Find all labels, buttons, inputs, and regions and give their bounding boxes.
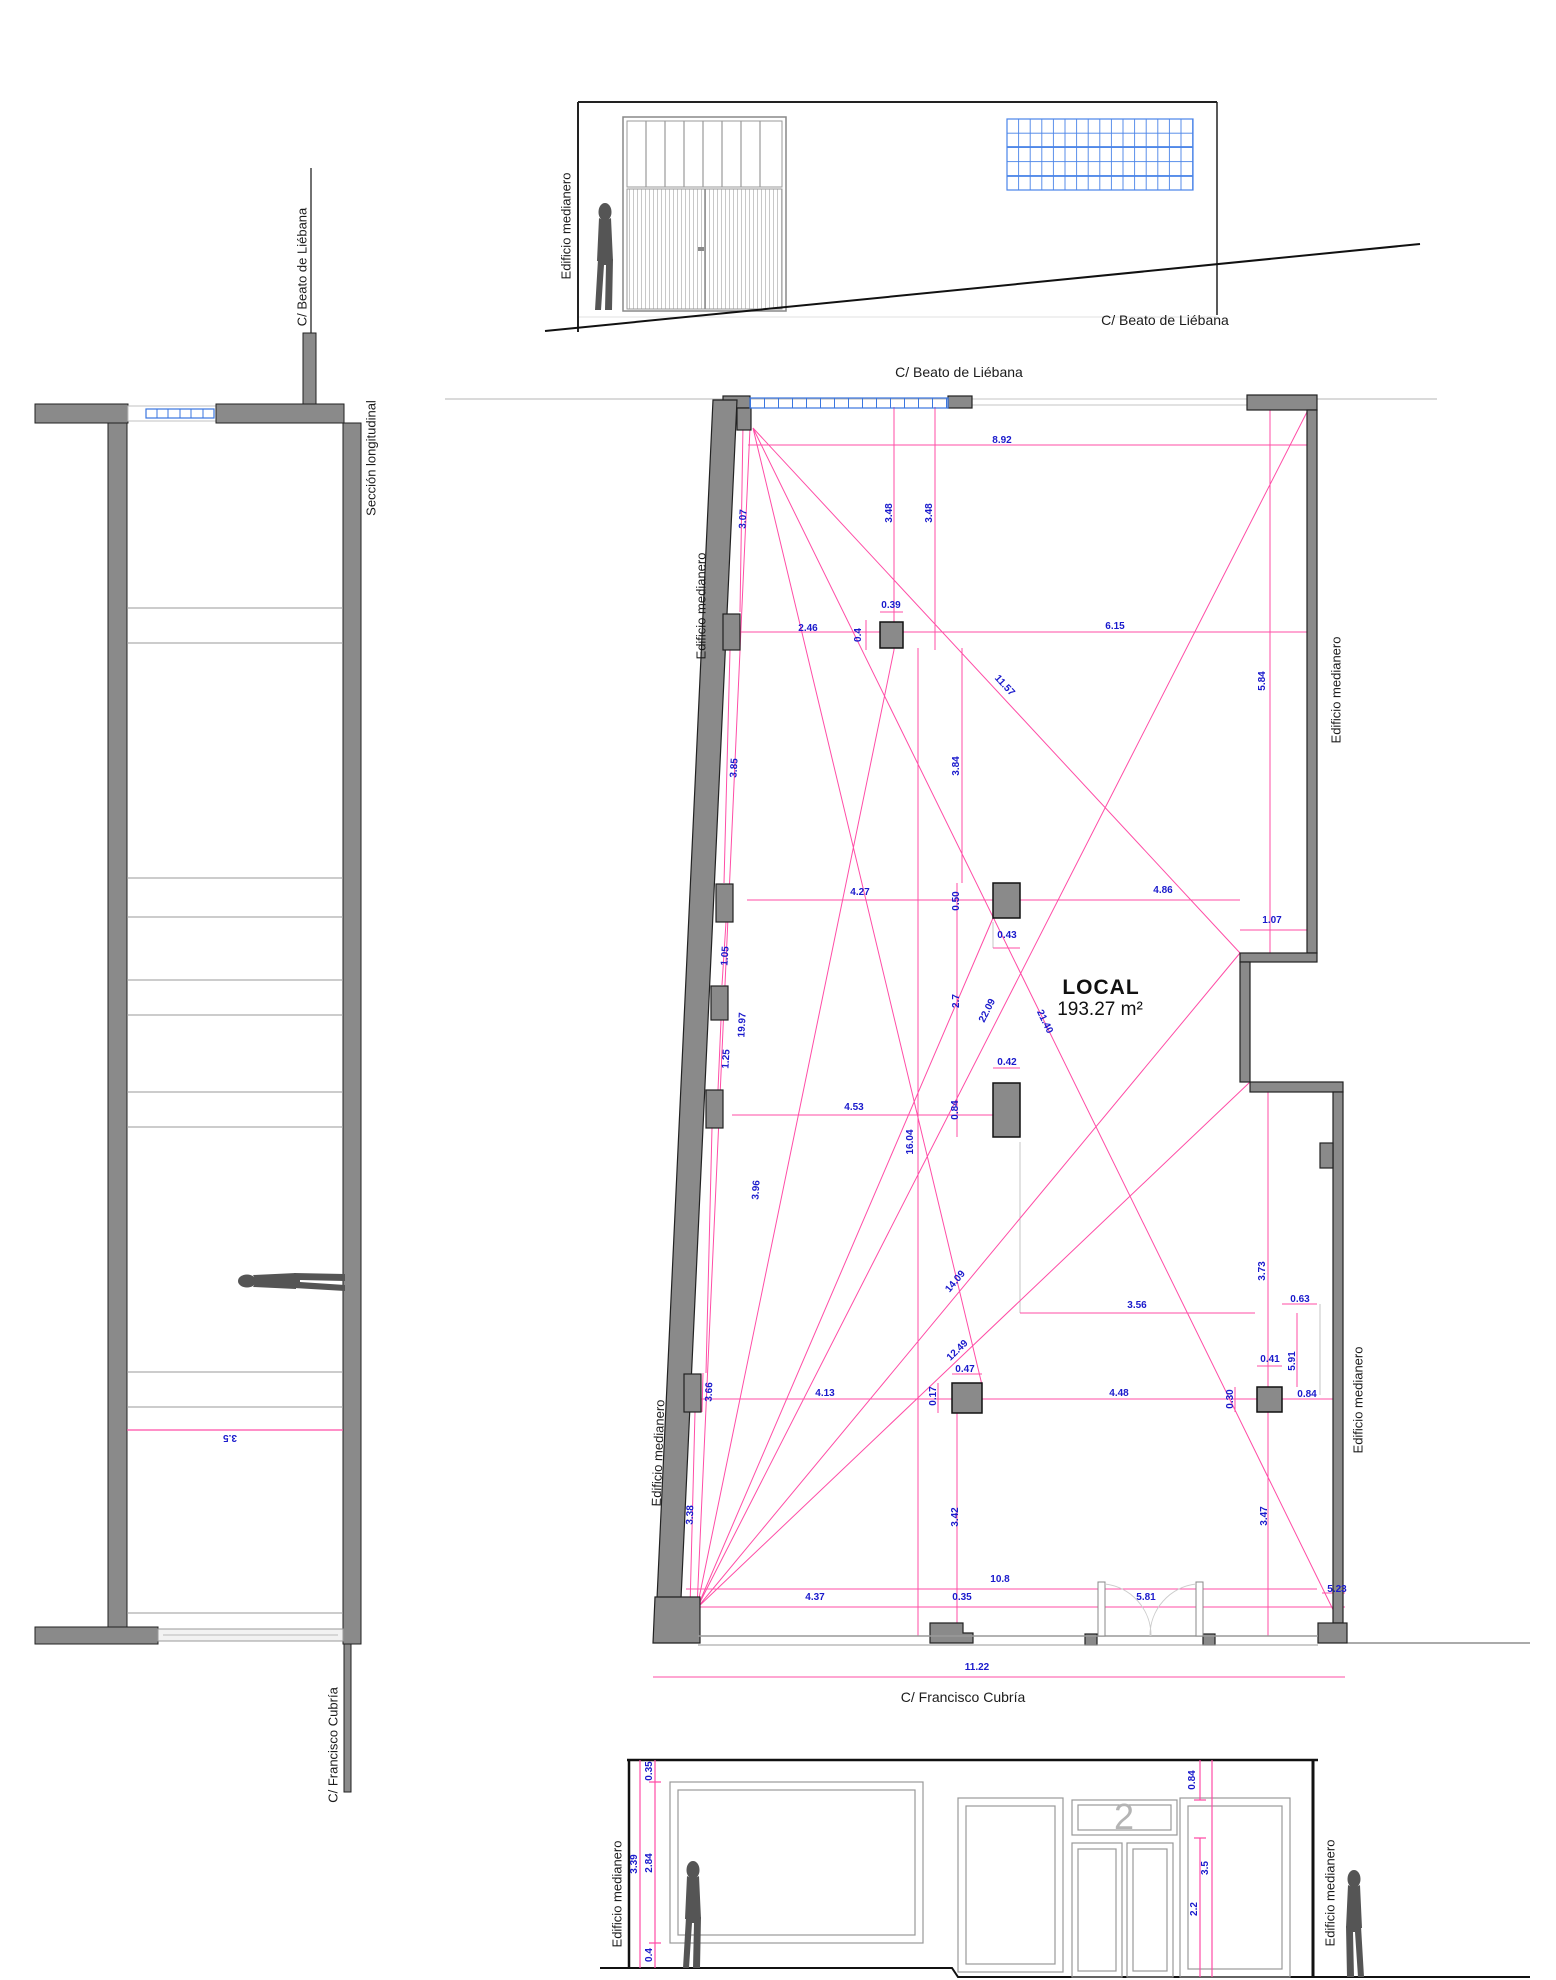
party-wall-label: Edificio medianero — [1330, 637, 1343, 744]
dimension-label: 3.47 — [1260, 1506, 1270, 1525]
dimension-label: 1.07 — [1262, 916, 1281, 926]
section-floor-lines — [127, 608, 343, 1613]
dimension-label: 0.63 — [1290, 1295, 1309, 1305]
section-title: Sección longitudinal — [365, 400, 378, 516]
dimension-label: 0.84 — [1188, 1770, 1198, 1789]
dimension-label: 5.23 — [1327, 1585, 1346, 1595]
street-label-beato-section: C/ Beato de Liébana — [296, 208, 309, 327]
room-area: 193.27 m² — [1057, 999, 1143, 1021]
street-label-francisco-section: C/ Francisco Cubría — [327, 1687, 340, 1803]
section-right-wall — [343, 423, 361, 1644]
plan-bottom-storefront — [698, 1582, 1318, 1645]
section-wall-below — [344, 1644, 351, 1792]
dimension-label: 3.5 — [223, 1432, 237, 1442]
dimension-label: 0.50 — [952, 891, 962, 910]
person-silhouette — [1346, 1870, 1364, 1977]
dimension-label: 0.17 — [929, 1386, 939, 1405]
dimension-label: 0.42 — [997, 1058, 1016, 1068]
dimension-label: 3.84 — [952, 756, 962, 775]
column — [952, 1383, 982, 1413]
column — [993, 883, 1020, 918]
party-wall-label: Edificio medianero — [1324, 1840, 1337, 1947]
dimension-label: 3.38 — [686, 1505, 697, 1525]
dimension-label: 3.48 — [885, 503, 895, 522]
dimension-label: 0.47 — [955, 1365, 974, 1375]
drawing-linework — [0, 0, 1556, 1980]
floor-plan — [445, 395, 1530, 1677]
column — [993, 1083, 1020, 1137]
section-left-wall — [108, 423, 127, 1628]
section-window — [146, 409, 214, 418]
street-label-beato-top-elevation: C/ Beato de Liébana — [1101, 313, 1229, 327]
portal-number: 2 — [1114, 1796, 1134, 1838]
plan-right-wall-lower — [1333, 1092, 1343, 1623]
ground-line — [600, 1968, 1530, 1977]
dimension-label: 0.43 — [997, 931, 1016, 941]
dimension-label: 3.85 — [729, 758, 740, 778]
dimension-label: 3.42 — [951, 1507, 961, 1526]
dimension-label: 4.53 — [844, 1103, 863, 1113]
dimension-label: 19.97 — [737, 1012, 748, 1038]
person-silhouette-lying — [238, 1273, 345, 1291]
person-silhouette — [595, 203, 613, 310]
entrance-door — [1072, 1843, 1122, 1977]
entrance-door — [1127, 1843, 1173, 1977]
dimension-label: 6.15 — [1105, 622, 1124, 632]
longitudinal-section — [35, 168, 361, 1792]
column — [1257, 1387, 1282, 1412]
dimension-label: 0.4 — [645, 1948, 655, 1962]
dimension-label: 3.5 — [1201, 1861, 1211, 1875]
dimension-label: 2.84 — [645, 1853, 655, 1872]
dimension-label: 0.35 — [952, 1593, 971, 1603]
party-wall-label: Edificio medianero — [611, 1841, 624, 1948]
dimension-label: 11.22 — [965, 1663, 989, 1673]
party-wall-label: Edificio medianero — [560, 173, 573, 280]
plan-right-wall-upper — [1307, 410, 1317, 953]
glass-block-panel — [1007, 119, 1193, 190]
plan-storefront-glazing — [750, 398, 948, 408]
party-wall-label: Edificio medianero — [1352, 1347, 1365, 1454]
door-handle-icon — [698, 247, 704, 251]
dimension-label: 5.84 — [1258, 671, 1268, 690]
dimension-label: 3.39 — [630, 1854, 640, 1873]
dimension-label: 5.91 — [1288, 1351, 1298, 1370]
dimension-label: 4.13 — [815, 1389, 834, 1399]
dimension-label: 2.46 — [798, 624, 817, 634]
party-wall-label: Edificio medianero — [650, 1399, 667, 1506]
dimension-label: 3.66 — [705, 1382, 716, 1402]
plan-walls — [653, 395, 1347, 1645]
dimension-label: 3.48 — [925, 503, 935, 522]
dimension-label: 4.27 — [850, 888, 869, 898]
dimension-label: 4.37 — [805, 1593, 824, 1603]
column — [880, 622, 903, 648]
dimension-label: 1.05 — [720, 946, 731, 966]
room-name: LOCAL — [1062, 976, 1139, 1000]
dimension-label: 0.84 — [951, 1100, 961, 1119]
dimension-label: 10.8 — [990, 1575, 1009, 1585]
dimension-label: 0.35 — [645, 1761, 655, 1780]
dimension-label: 5.81 — [1136, 1593, 1155, 1603]
dimension-label: 8.92 — [992, 436, 1011, 446]
party-wall-label: Edificio medianero — [695, 553, 708, 660]
dimension-label: 2.7 — [952, 994, 962, 1008]
door-leaf — [1098, 1582, 1105, 1636]
street-label-beato-plan: C/ Beato de Liébana — [895, 365, 1023, 379]
dimension-label: 3.07 — [738, 509, 749, 529]
dimension-label: 3.56 — [1127, 1301, 1146, 1311]
dimension-label: 0.39 — [881, 601, 900, 611]
dimension-label: 0.4 — [854, 628, 864, 642]
dimension-label: 4.48 — [1109, 1389, 1128, 1399]
dimension-label: 0.84 — [1297, 1390, 1316, 1400]
door-leaf — [1196, 1582, 1203, 1636]
dimension-label: 0.30 — [1226, 1389, 1236, 1408]
top-elevation — [545, 102, 1420, 332]
dimension-label: 0.41 — [1260, 1355, 1279, 1365]
street-elevation — [600, 1760, 1530, 1977]
dimension-label: 3.73 — [1258, 1261, 1268, 1280]
elevation-dim-lines — [640, 1760, 1212, 1977]
storefront-window — [670, 1782, 923, 1943]
dimension-label: 2.2 — [1190, 1902, 1200, 1916]
dimension-label: 1.25 — [721, 1049, 732, 1069]
dimension-label: 16.04 — [906, 1129, 916, 1154]
dimension-label: 4.86 — [1153, 886, 1172, 896]
garage-door — [623, 117, 786, 311]
architectural-drawing-sheet: C/ Beato de Liébana C/ Beato de Liébana … — [0, 0, 1556, 1980]
dimension-label: 3.96 — [751, 1180, 762, 1200]
person-silhouette — [683, 1861, 701, 1968]
street-label-francisco-plan: C/ Francisco Cubría — [901, 1690, 1025, 1704]
